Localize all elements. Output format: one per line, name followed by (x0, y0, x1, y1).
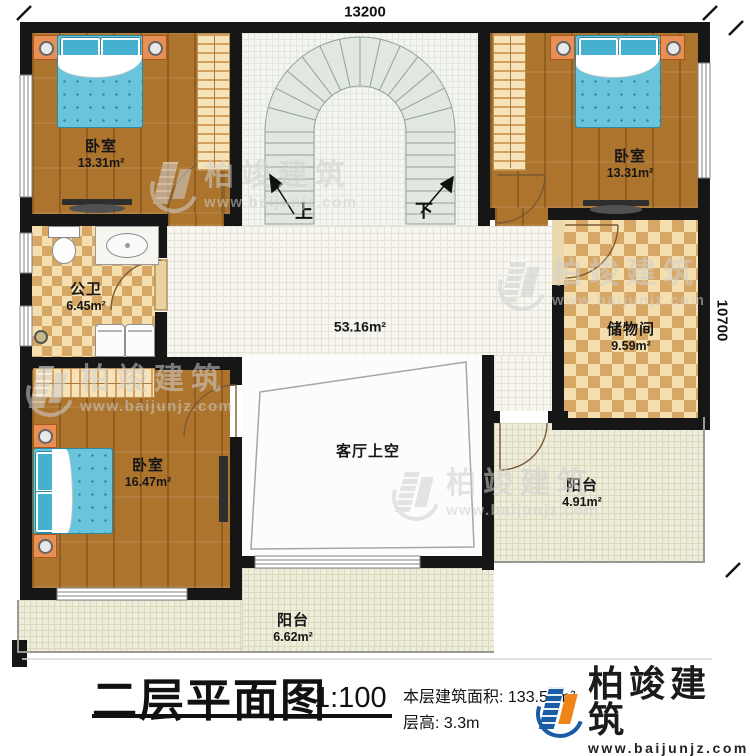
room-label-bedroom-bottom-left: 卧室 16.47m² (125, 457, 172, 489)
wardrobe-icon (33, 368, 155, 398)
dimension-label-top: 13200 (344, 4, 386, 21)
dimension-label-right: 10700 (714, 286, 731, 356)
stairs-down-label: 下 (415, 197, 433, 223)
room-label-storage: 储物间 9.59m² (607, 321, 655, 353)
wardrobe-icon (493, 33, 526, 171)
bed-icon (33, 448, 113, 534)
bed-icon (575, 35, 661, 128)
room-label-balcony-right: 阳台 4.91m² (562, 477, 602, 509)
floor-height-text: 层高: 3.3m (403, 709, 479, 733)
staircase (265, 37, 455, 224)
tv-icon (219, 456, 228, 522)
brand-logo: 柏竣建筑 www.baijunjz.com (536, 666, 750, 756)
toilet-bowl-icon (52, 237, 76, 264)
nightstand-icon (33, 534, 57, 558)
tv-console-icon (62, 199, 132, 214)
plan-title: 二层平面图 (92, 664, 327, 729)
room-label-balcony-bottom: 阳台 6.62m² (273, 612, 313, 644)
floor-drain-icon (34, 330, 48, 344)
nightstand-icon (142, 35, 167, 60)
floor-plan: 卧室 13.31m² 卧室 13.31m² 公卫 6.45m² 53.16m² … (0, 0, 750, 740)
room-label-bedroom-top-left: 卧室 13.31m² (78, 138, 125, 170)
room-label-bathroom: 公卫 6.45m² (66, 281, 106, 313)
wardrobe-icon (197, 33, 230, 171)
nightstand-icon (660, 35, 685, 60)
brand-name: 柏竣建筑 (588, 666, 750, 738)
nightstand-icon (33, 35, 58, 60)
brand-url: www.baijunjz.com (588, 740, 750, 756)
stairs-up-label: 上 (295, 198, 313, 224)
nightstand-icon (33, 424, 57, 448)
room-label-hall-area: 53.16m² (334, 319, 386, 336)
washing-machine-icon (95, 324, 125, 357)
tv-console-icon (583, 200, 649, 214)
room-label-living-void: 客厅上空 (336, 443, 400, 461)
nightstand-icon (550, 35, 575, 60)
bed-icon (57, 35, 143, 128)
room-label-bedroom-top-right: 卧室 13.31m² (607, 148, 654, 180)
plan-scale: 1:100 (314, 682, 387, 715)
sink-basin-icon (106, 233, 148, 258)
brand-logo-icon (536, 685, 582, 737)
doors (111, 158, 618, 470)
washing-machine-icon (125, 324, 155, 357)
